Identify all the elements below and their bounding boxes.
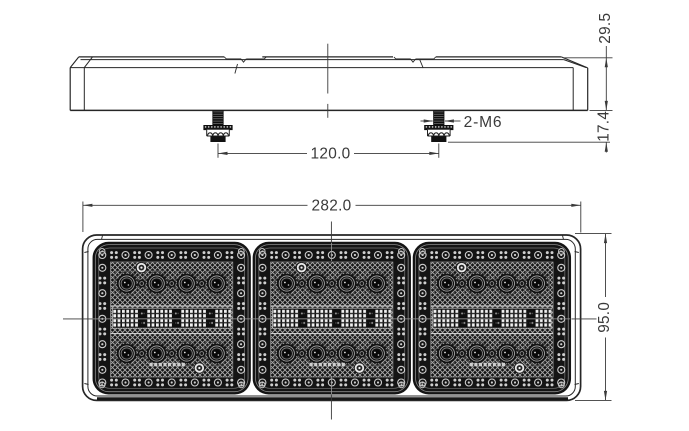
svg-text:120.0: 120.0 [310, 145, 350, 162]
svg-text:29.5: 29.5 [597, 13, 614, 44]
svg-text:282.0: 282.0 [311, 197, 351, 214]
svg-text:2-M6: 2-M6 [464, 114, 503, 131]
svg-text:17.4: 17.4 [595, 111, 612, 142]
svg-text:95.0: 95.0 [596, 302, 613, 333]
